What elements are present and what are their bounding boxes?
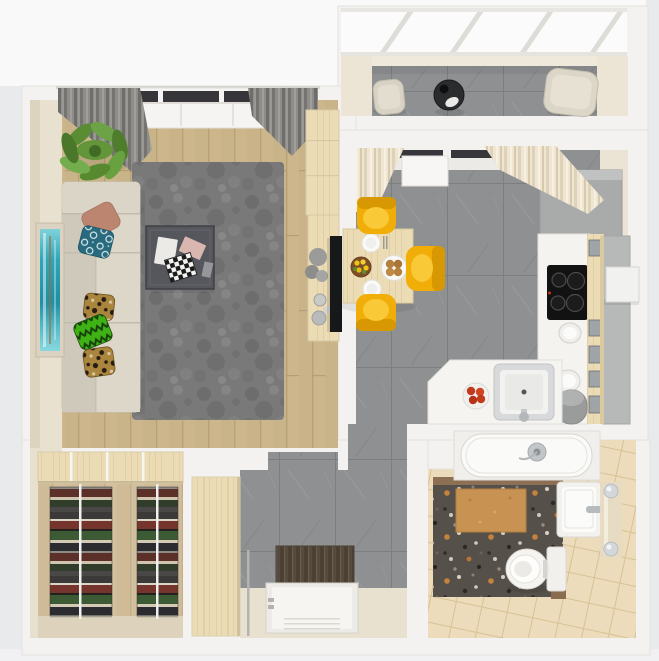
dining-plate-inner (366, 238, 377, 249)
hall-doorway-floor (268, 452, 338, 472)
bun (386, 268, 394, 276)
entry-door-hinge (268, 605, 274, 609)
console-plant (316, 270, 328, 282)
kitchen-sill-box (402, 156, 448, 186)
toilet-tank (547, 547, 566, 591)
wardrobe-grain (204, 477, 205, 636)
balcony-chair-right-cushion (549, 74, 593, 111)
wardrobe-grain (216, 477, 217, 636)
balcony-wall-left (341, 56, 372, 116)
wardrobe-grain (228, 477, 229, 636)
hall-mirror (247, 550, 250, 636)
bun (386, 260, 394, 268)
entry-door-line (284, 618, 340, 620)
media-cabinet-seam (306, 175, 339, 176)
shelf-rail (106, 452, 109, 483)
flower (354, 260, 359, 265)
bathtub (461, 434, 592, 477)
wall-light-glint (607, 545, 612, 550)
cooktop (547, 265, 588, 320)
flower (356, 267, 361, 272)
cork-speckle (479, 521, 482, 524)
entry-door-line (284, 628, 340, 630)
entry-door-hinge (268, 598, 274, 602)
flower (363, 265, 368, 270)
flower-leaf (362, 270, 366, 274)
flower-leaf (353, 267, 357, 271)
wall-art-streak (49, 236, 51, 344)
console-vase (314, 294, 326, 306)
pillow-leopard (82, 346, 116, 378)
tomato-bowl (463, 383, 489, 409)
cooktop-light (548, 292, 551, 295)
shelf-rail (142, 452, 145, 483)
shelf-edge (38, 481, 183, 483)
kitchen-sink-drain (522, 390, 527, 395)
cooktop-burner (551, 296, 565, 310)
wall-art-streak (43, 233, 46, 347)
wardrobe-edge (237, 477, 240, 636)
doormat (276, 546, 354, 586)
closet-floor-bottom (38, 616, 183, 638)
cork-speckle (469, 499, 472, 502)
dining-chair-right-back (432, 246, 445, 291)
dining-chair-right-seat (411, 254, 433, 282)
bun (394, 260, 402, 268)
console-plant (309, 248, 327, 266)
hanging-rail (156, 484, 159, 619)
tall-cabinet-top (603, 236, 630, 424)
tomato (469, 396, 477, 404)
dining-plate-inner (367, 284, 378, 295)
shelf-rail (70, 452, 73, 483)
floor-plan-stage (0, 0, 659, 661)
bathroom-wall-notch (428, 440, 456, 469)
cooktop-burner (552, 273, 566, 287)
toilet-bowl-inner (514, 561, 532, 577)
wall-light-glint (607, 487, 612, 492)
entry-door-panel (272, 587, 352, 629)
window-frame-gap (219, 91, 224, 102)
flower (360, 259, 365, 264)
console-vase (312, 311, 326, 325)
entry-door-line (284, 623, 340, 625)
wall-unit (606, 267, 639, 302)
balcony-table-kettle (440, 85, 449, 94)
tall-cabinet-edge (600, 236, 604, 424)
wall-light (604, 542, 618, 556)
window-frame-gap (158, 91, 163, 102)
balcony-wall-right (597, 56, 628, 116)
tomato (477, 395, 485, 403)
dining-chair-top-seat (363, 207, 389, 229)
cork-mat (456, 489, 526, 532)
window-tick (180, 104, 182, 126)
dining-chair-bottom-seat (363, 299, 389, 321)
bun-plate (382, 256, 407, 281)
cork-speckle (494, 511, 497, 514)
cooktop-burner (567, 295, 584, 312)
wall-art-streak (54, 240, 56, 340)
media-cabinet (306, 110, 339, 215)
wall-tv (330, 236, 342, 332)
closet-shelf (38, 452, 183, 483)
toilet-hinge (543, 560, 547, 578)
cooktop-burner (568, 273, 585, 290)
window-tick (232, 104, 234, 126)
counter-bowl-inner (563, 327, 577, 339)
floor-plan-canvas (0, 0, 659, 661)
glass-frame-top (341, 8, 627, 12)
cutlery (386, 236, 388, 249)
tomato (467, 387, 475, 395)
cork-speckle (509, 497, 512, 500)
media-cabinet-seam (306, 140, 339, 141)
bun (394, 268, 402, 276)
cutlery (383, 236, 385, 249)
hanging-rail (79, 484, 82, 619)
plant-center-dark (89, 145, 101, 157)
balcony-chair-left-cushion (377, 84, 401, 110)
kitchen-faucet-base (519, 412, 529, 422)
wall-light (604, 484, 618, 498)
